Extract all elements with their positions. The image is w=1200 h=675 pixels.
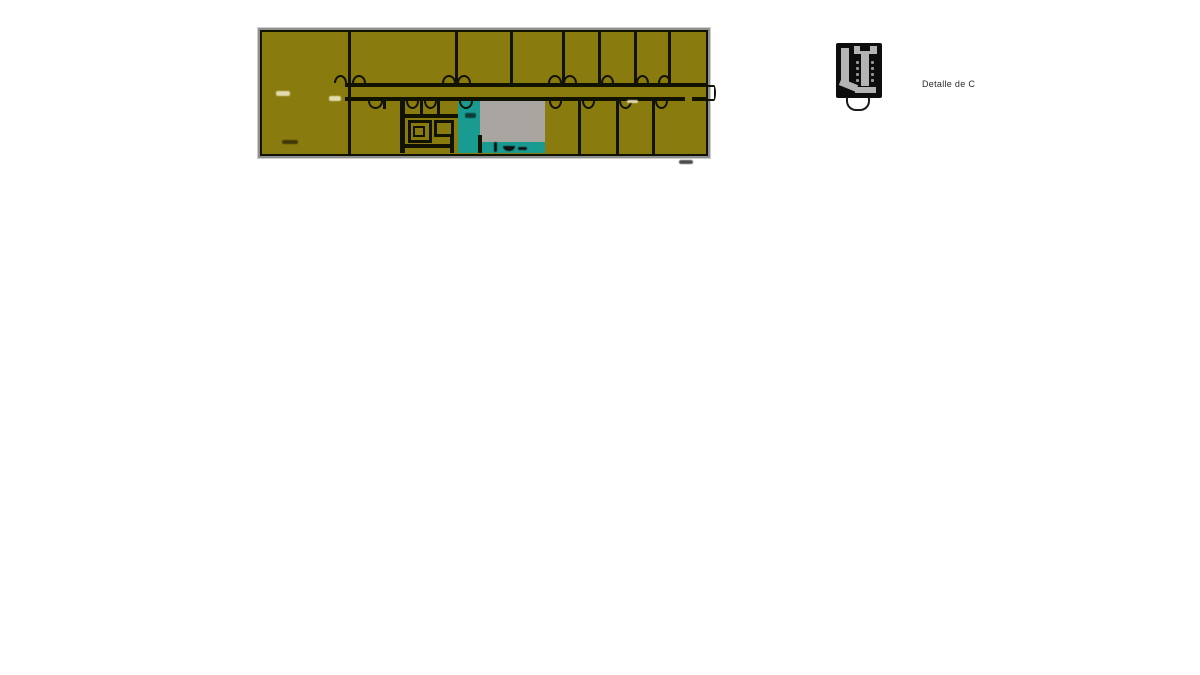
wall [578,101,581,156]
door-arc [601,75,614,83]
room-label-mark [282,140,298,144]
desktop-background: { "canvas": {"width": 1200, "height": 67… [0,0,1200,675]
wall [562,30,565,83]
wet-core-fixture [413,126,425,137]
door-arc [563,75,577,83]
keypad-dot [871,73,874,76]
wall [455,30,458,83]
keypad-dot [856,61,859,64]
scale-label-mark [679,160,693,164]
phone-cradle-notch [860,46,870,51]
door-arc [655,101,668,109]
door-symbol-mark [518,147,527,150]
door-arc [548,75,562,83]
room-label-mark [276,91,290,96]
exterior-door-arc [707,85,716,101]
door-arc [636,75,649,83]
wet-area-divider-wall [478,135,482,153]
door-arc [442,75,456,83]
door-arc [549,101,562,109]
keypad-dot [871,67,874,70]
door-arc [457,75,471,83]
wet-core-wall [401,144,453,148]
keypad-dot [856,79,859,82]
wall [634,30,637,83]
door-arc [352,75,366,83]
door-symbol-mark [494,142,497,152]
room-label-mark [465,113,476,118]
patio-void-area [480,101,545,142]
floor-plan [258,28,710,158]
wall [383,101,386,109]
door-arc [424,101,437,109]
wall [348,30,351,156]
corridor-wall-bottom [692,97,708,101]
door-arc [368,101,383,109]
room-label-mark [627,100,638,103]
detail-caption: Detalle de C [922,79,1002,89]
wet-core-wall [400,114,458,118]
keypad-dot [856,73,859,76]
wall [652,101,655,156]
door-arc [582,101,595,109]
keypad-dot [871,79,874,82]
door-arc [406,101,419,109]
wet-core-wall [450,136,454,153]
room-label-mark [329,96,341,101]
wet-core-room [434,120,454,137]
corridor-wall-top [345,83,708,87]
door-arc [334,75,347,83]
keypad-dot [856,67,859,70]
cad-viewport: Detalle de C [0,0,1200,675]
phone-center-bar [861,54,869,86]
wall [668,30,671,83]
phone-label-plate [855,87,876,93]
wall [616,101,619,156]
wall [598,30,601,83]
keypad-dot [871,61,874,64]
wall [510,30,513,83]
